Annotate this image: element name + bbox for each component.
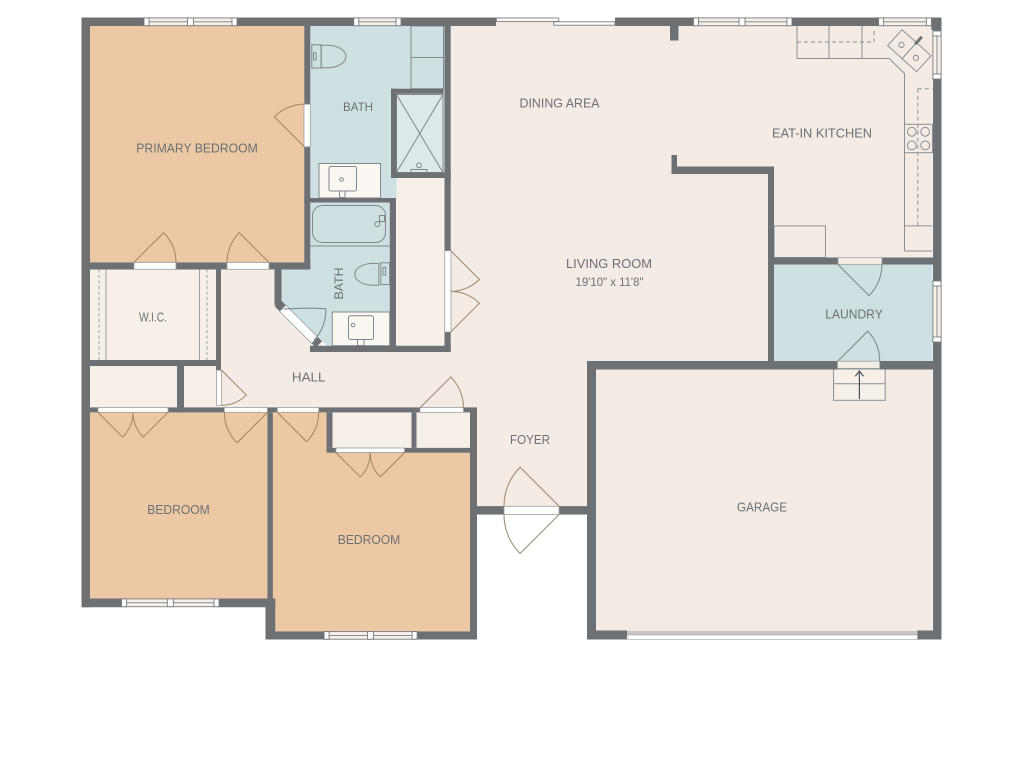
svg-text:DINING AREA: DINING AREA <box>520 97 601 111</box>
svg-text:PRIMARY BEDROOM: PRIMARY BEDROOM <box>136 142 258 156</box>
svg-text:BEDROOM: BEDROOM <box>147 503 210 517</box>
svg-text:BATH: BATH <box>332 268 346 300</box>
svg-text:BATH: BATH <box>343 100 373 114</box>
svg-text:LIVING ROOM: LIVING ROOM <box>566 257 652 271</box>
svg-text:GARAGE: GARAGE <box>737 501 787 515</box>
svg-text:LAUNDRY: LAUNDRY <box>825 307 883 321</box>
svg-text:BEDROOM: BEDROOM <box>338 533 401 547</box>
svg-text:EAT-IN KITCHEN: EAT-IN KITCHEN <box>772 127 872 141</box>
svg-text:FOYER: FOYER <box>510 433 550 447</box>
svg-text:W.I.C.: W.I.C. <box>139 311 167 325</box>
svg-text:19'10" x 11'8": 19'10" x 11'8" <box>576 277 644 289</box>
svg-text:HALL: HALL <box>292 371 326 385</box>
